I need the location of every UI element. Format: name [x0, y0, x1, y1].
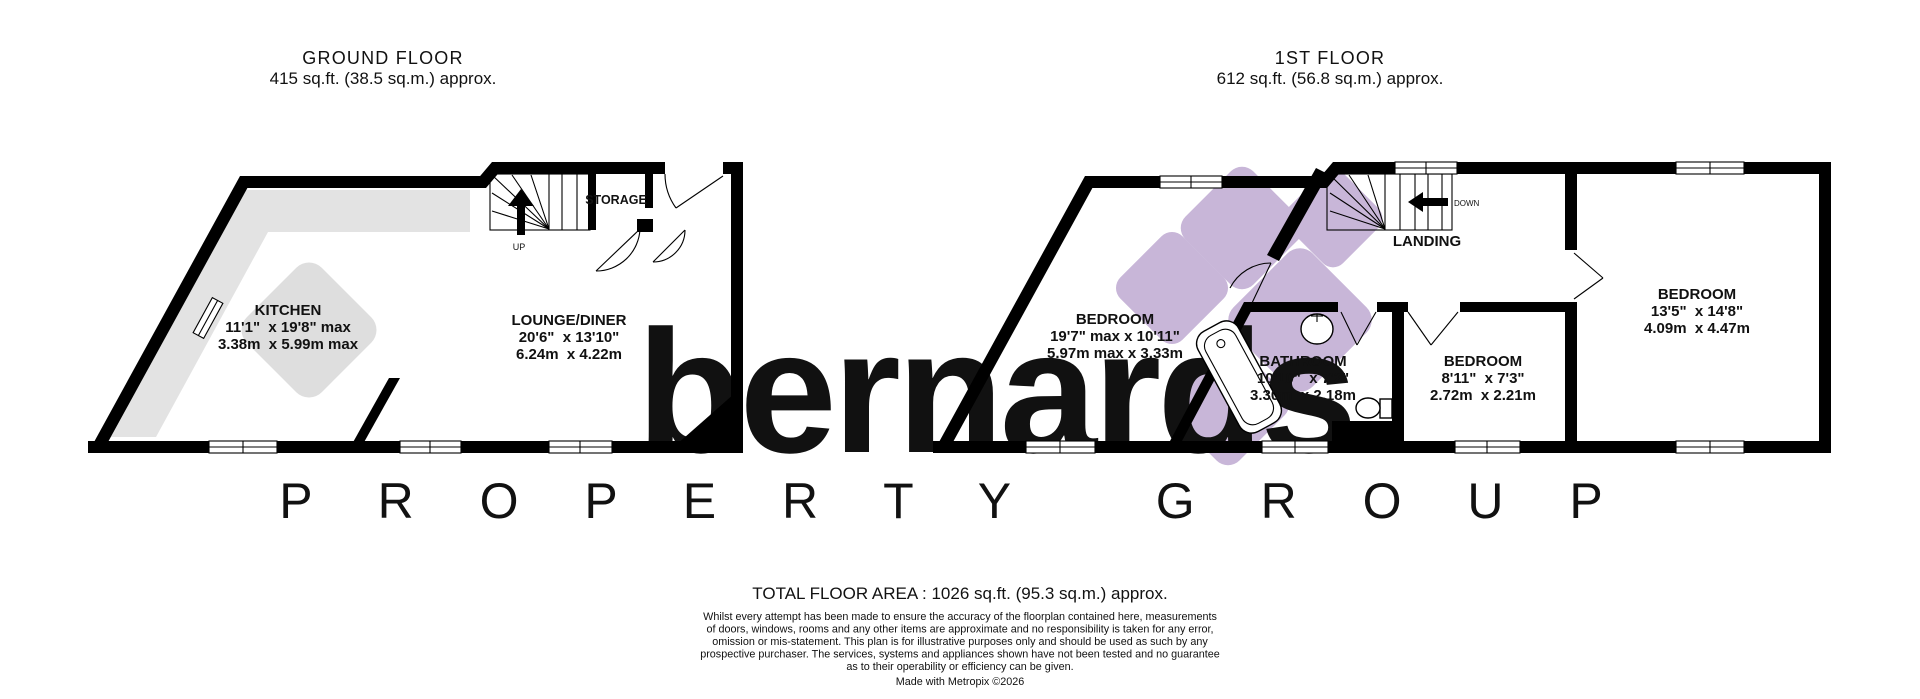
window	[209, 441, 277, 453]
left-slant-wall	[88, 176, 254, 453]
bathroom-label: BATHROOM	[1259, 353, 1346, 370]
bathroom-dims-metric: 3.30m x 2.18m	[1250, 387, 1356, 404]
bedroom2-dims-metric: 2.72m x 2.21m	[1430, 387, 1536, 404]
window	[1676, 162, 1744, 174]
total-floor-area: TOTAL FLOOR AREA : 1026 sq.ft. (95.3 sq.…	[752, 584, 1167, 603]
first-floor-header: 1ST FLOOR 612 sq.ft. (56.8 sq.m.) approx…	[1217, 48, 1444, 88]
down-label: DOWN	[1454, 199, 1480, 208]
top-wall	[240, 176, 480, 188]
bathroom-right-wall	[1392, 302, 1404, 441]
disclaimer-line: as to their operability or efficiency ca…	[846, 661, 1073, 673]
window	[549, 441, 612, 453]
ground-floor-stairs: UP	[490, 174, 590, 252]
first-floor-area: 612 sq.ft. (56.8 sq.m.) approx.	[1217, 69, 1444, 88]
metropix-credit: Made with Metropix ©2026	[896, 676, 1025, 688]
window	[1160, 176, 1222, 188]
bathroom-dims-imperial: 10'10" x 7'2"	[1257, 370, 1349, 387]
window	[400, 441, 461, 453]
first-floor-title: 1ST FLOOR	[1275, 48, 1386, 68]
lounge-dims-metric: 6.24m x 4.22m	[516, 346, 622, 363]
entrance-door	[665, 174, 723, 208]
window	[1262, 441, 1328, 453]
watermark-tagline: P R O P E R T Y G R O U P	[279, 473, 1628, 529]
window	[1455, 441, 1520, 453]
up-arrow-icon	[508, 189, 534, 235]
bedroom1-dims-imperial: 19'7" max x 10'11"	[1050, 328, 1180, 345]
bedroom3-wall-lower	[1565, 302, 1577, 441]
bathroom-chimney-block	[1332, 421, 1397, 445]
footer: TOTAL FLOOR AREA : 1026 sq.ft. (95.3 sq.…	[700, 584, 1220, 688]
disclaimer-line: prospective purchaser. The services, sys…	[700, 649, 1220, 661]
bedroom1-dims-metric: 5.97m max x 3.33m	[1047, 345, 1183, 362]
disclaimer-line: omission or mis-statement. This plan is …	[712, 636, 1208, 648]
bathroom-top-wall-left	[1250, 302, 1338, 312]
right-wall	[1819, 162, 1831, 453]
kitchen-dims-metric: 3.38m x 5.99m max	[218, 336, 359, 353]
bedroom2-label: BEDROOM	[1444, 353, 1522, 370]
bedroom2-dims-imperial: 8'11" x 7'3"	[1441, 370, 1524, 387]
up-label: UP	[513, 242, 526, 252]
toilet	[1356, 398, 1392, 418]
ground-floor-title: GROUND FLOOR	[302, 48, 463, 68]
lounge-label: LOUNGE/DINER	[511, 312, 626, 329]
disclaimer-line: of doors, windows, rooms and any other i…	[706, 624, 1213, 636]
stair-top-wall	[492, 162, 665, 174]
bedroom2-top-wall	[1460, 302, 1577, 312]
bedroom3-dims-imperial: 13'5" x 14'8"	[1651, 303, 1743, 320]
lounge-dims-imperial: 20'6" x 13'10"	[519, 329, 620, 346]
bedroom3-wall-upper	[1565, 174, 1577, 250]
ground-floor-doors	[596, 174, 723, 271]
bedroom3-label: BEDROOM	[1658, 286, 1736, 303]
window	[1676, 441, 1744, 453]
disclaimer-line: Whilst every attempt has been made to en…	[703, 611, 1217, 623]
ground-floor-area: 415 sq.ft. (38.5 sq.m.) approx.	[270, 69, 497, 88]
bedroom1-label: BEDROOM	[1076, 311, 1154, 328]
floorplan-canvas: GROUND FLOOR 415 sq.ft. (38.5 sq.m.) app…	[0, 0, 1920, 699]
bedroom3-door	[1574, 253, 1603, 299]
window	[1026, 441, 1095, 453]
sink	[1301, 314, 1333, 344]
storage-label: STORAGE	[585, 193, 647, 207]
kitchen-label: KITCHEN	[255, 302, 322, 319]
bedroom2-door	[1408, 312, 1458, 345]
landing-label: LANDING	[1393, 233, 1461, 250]
bedroom3-dims-metric: 4.09m x 4.47m	[1644, 320, 1750, 337]
storage-door	[653, 230, 685, 262]
under-stairs-door	[596, 229, 640, 271]
ground-floor-header: GROUND FLOOR 415 sq.ft. (38.5 sq.m.) app…	[270, 48, 497, 88]
kitchen-dims-imperial: 11'1" x 19'8" max	[225, 319, 351, 336]
window	[1395, 162, 1457, 174]
